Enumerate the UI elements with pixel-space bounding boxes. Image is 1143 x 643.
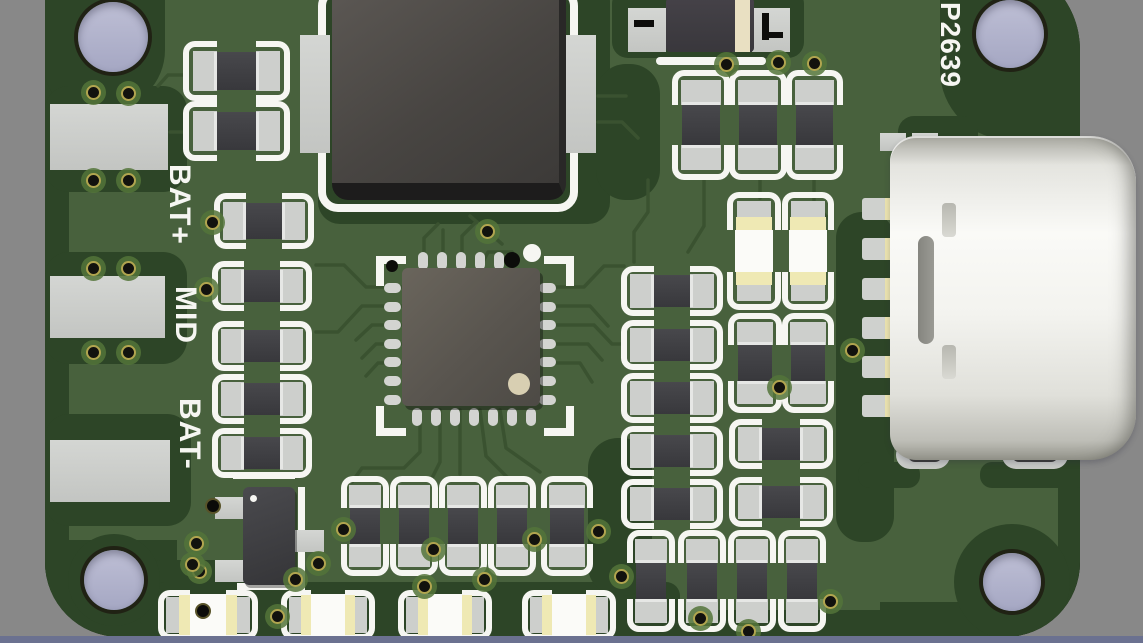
via xyxy=(311,556,326,571)
via xyxy=(823,594,838,609)
via-dot xyxy=(504,252,520,268)
silk-corner-bracket xyxy=(566,256,574,286)
led-pad xyxy=(354,597,367,633)
resistor xyxy=(212,261,312,311)
usb-shell-seam xyxy=(918,236,934,344)
qfn-pin xyxy=(384,283,401,293)
via xyxy=(121,86,136,101)
via xyxy=(614,569,629,584)
resistor-body xyxy=(682,102,719,148)
resistor xyxy=(541,476,593,576)
resistor xyxy=(728,530,776,632)
resistor-body xyxy=(738,342,773,384)
inductor-pad xyxy=(566,35,596,153)
led-anode-stripe xyxy=(585,595,596,635)
silk-corner-bracket xyxy=(566,406,574,436)
resistor-pad xyxy=(256,51,281,92)
resistor-pad xyxy=(280,436,303,470)
inductor-pad xyxy=(300,35,330,153)
resistor-pad xyxy=(681,145,720,170)
via xyxy=(591,524,606,539)
qfn-chip xyxy=(374,244,574,448)
led-pad xyxy=(791,201,824,218)
resistor-body xyxy=(759,486,803,518)
resistor xyxy=(183,101,290,161)
resistor xyxy=(621,426,723,476)
led-body xyxy=(311,594,345,636)
resistor-pad xyxy=(790,381,825,404)
via xyxy=(86,173,101,188)
qfn-pin xyxy=(539,283,556,293)
qfn-pin xyxy=(507,408,517,426)
resistor-body xyxy=(739,102,776,148)
via xyxy=(336,522,351,537)
resistor-pad xyxy=(349,544,382,567)
edge-connector-pad xyxy=(50,104,168,170)
cathode-band xyxy=(735,0,750,52)
sot23 xyxy=(195,470,325,600)
resistor-pad xyxy=(256,111,281,152)
resistor xyxy=(390,476,438,576)
via xyxy=(771,55,786,70)
led-pad xyxy=(737,284,772,301)
resistor-pad xyxy=(496,544,529,567)
via xyxy=(417,579,432,594)
diode-pad xyxy=(628,8,666,52)
resistor xyxy=(782,313,834,413)
led xyxy=(522,590,616,637)
qfn-pin xyxy=(384,302,401,312)
via xyxy=(693,611,708,626)
led-pad xyxy=(737,201,772,218)
resistor-pad xyxy=(736,599,769,622)
led-pad xyxy=(236,597,250,633)
led-pad xyxy=(406,597,419,633)
qfn-pin xyxy=(450,408,460,426)
qfn-pin xyxy=(539,395,556,405)
led-anode-stripe xyxy=(790,271,825,285)
inductor xyxy=(296,0,606,230)
resistor xyxy=(672,70,730,180)
resistor-body xyxy=(651,329,694,361)
sot-pad xyxy=(215,560,245,582)
resistor-pad xyxy=(447,544,480,567)
edge-connector-pad xyxy=(50,276,165,338)
resistor-body xyxy=(636,560,667,603)
resistor-pad xyxy=(280,269,303,303)
pin1-dot xyxy=(250,495,257,502)
via xyxy=(477,572,492,587)
via xyxy=(772,380,787,395)
resistor-body xyxy=(497,505,528,547)
resistor-body xyxy=(241,383,283,415)
diode-pad xyxy=(752,8,790,52)
resistor-body xyxy=(399,505,430,547)
resistor xyxy=(728,313,782,413)
resistor-pad xyxy=(738,145,777,170)
resistor-body xyxy=(241,437,283,469)
resistor xyxy=(729,70,787,180)
resistor-pad xyxy=(690,381,713,415)
led-body xyxy=(552,594,586,636)
qfn-pin xyxy=(412,408,422,426)
led-pad xyxy=(166,597,180,633)
resistor-pad xyxy=(690,434,713,468)
via xyxy=(845,343,860,358)
resistor-pad xyxy=(800,427,824,461)
led-anode-stripe xyxy=(344,595,355,635)
resistor-body xyxy=(787,560,818,603)
via xyxy=(185,557,200,572)
led-anode-stripe xyxy=(225,595,237,635)
resistor-body xyxy=(796,102,832,148)
resistor xyxy=(183,41,290,101)
via xyxy=(719,57,734,72)
led-pad xyxy=(289,597,302,633)
led-pad xyxy=(595,597,608,633)
via xyxy=(527,532,542,547)
resistor-body xyxy=(448,505,479,547)
qfn-pin xyxy=(539,302,556,312)
resistor xyxy=(439,476,487,576)
via xyxy=(121,345,136,360)
resistor xyxy=(778,530,826,632)
mounting-hole xyxy=(84,550,144,610)
led-pad xyxy=(791,284,824,301)
silk-corner-bracket xyxy=(376,256,384,286)
resistor xyxy=(212,321,312,371)
resistor xyxy=(488,476,536,576)
polarity-mark xyxy=(634,20,654,27)
led-body xyxy=(735,230,774,272)
via xyxy=(86,85,101,100)
via-dot xyxy=(386,260,398,272)
resistor-body xyxy=(651,488,694,520)
via xyxy=(195,603,211,619)
resistor-body xyxy=(759,428,803,460)
resistor-body xyxy=(737,560,768,603)
qfn-pin xyxy=(526,408,536,426)
usb-c-connector xyxy=(890,136,1136,460)
via xyxy=(807,56,822,71)
usb-shell-dimple xyxy=(942,345,956,379)
resistor-pad xyxy=(280,329,303,363)
resistor xyxy=(786,70,843,180)
resistor xyxy=(621,479,723,529)
qfn-pin xyxy=(488,408,498,426)
resistor-body xyxy=(791,342,824,384)
resistor-body xyxy=(350,505,381,547)
via xyxy=(121,173,136,188)
resistor-pad xyxy=(549,544,584,567)
qfn-pin xyxy=(384,395,401,405)
silk-line xyxy=(233,472,295,479)
silkscreen-label: BAT- xyxy=(174,398,204,470)
via xyxy=(189,536,204,551)
resistor xyxy=(212,374,312,424)
silk-line xyxy=(656,57,766,65)
led-pad xyxy=(471,597,484,633)
resistor-pad xyxy=(795,145,834,170)
resistor-body xyxy=(241,270,283,302)
resistor xyxy=(729,477,833,527)
via xyxy=(86,261,101,276)
resistor xyxy=(627,530,675,632)
qfn-pin xyxy=(539,339,556,349)
via xyxy=(205,498,221,514)
resistor-body xyxy=(651,275,694,307)
qfn-pin xyxy=(469,408,479,426)
usb-shell-dimple xyxy=(942,203,956,237)
edge-connector-pad xyxy=(50,440,170,502)
led-pad xyxy=(530,597,543,633)
led-body xyxy=(789,230,826,272)
led xyxy=(727,192,781,310)
resistor-pad xyxy=(280,382,303,416)
via xyxy=(86,345,101,360)
resistor xyxy=(621,373,723,423)
led xyxy=(782,192,834,310)
resistor-pad xyxy=(690,328,713,362)
bottom-bar xyxy=(0,636,1143,643)
polarity-mark xyxy=(765,32,783,38)
silkscreen-label: BAT+ xyxy=(164,164,194,245)
qfn-pin xyxy=(539,320,556,330)
silk-corner-bracket xyxy=(376,406,384,436)
mounting-hole xyxy=(78,2,148,72)
pin1-marker xyxy=(508,373,530,395)
resistor-pad xyxy=(635,599,668,622)
resistor xyxy=(621,320,723,370)
resistor-body xyxy=(241,330,283,362)
qfn-pin xyxy=(384,376,401,386)
qfn-pin xyxy=(539,376,556,386)
kicad-3d-viewport[interactable]: BAT+MIDBAT-P2639 xyxy=(0,0,1143,643)
silkscreen-label: P2639 xyxy=(936,2,964,88)
inductor-body xyxy=(332,0,566,200)
resistor-pad xyxy=(690,274,713,308)
resistor xyxy=(621,266,723,316)
resistor-body xyxy=(243,203,285,239)
via xyxy=(426,542,441,557)
via xyxy=(121,261,136,276)
silkscreen-label: MID xyxy=(170,286,200,344)
led-anode-stripe xyxy=(461,595,472,635)
mounting-hole xyxy=(983,553,1041,611)
via xyxy=(205,215,220,230)
resistor xyxy=(729,419,833,469)
via xyxy=(288,572,303,587)
via xyxy=(480,224,495,239)
via xyxy=(270,609,285,624)
resistor-pad xyxy=(737,381,774,404)
led-body xyxy=(428,594,462,636)
resistor-pad xyxy=(786,599,819,622)
sot-pad xyxy=(290,530,324,552)
sot-body xyxy=(243,487,295,585)
mounting-hole xyxy=(976,0,1044,68)
resistor-pad xyxy=(690,487,713,521)
resistor-body xyxy=(214,112,259,150)
led-anode-stripe xyxy=(736,271,773,285)
resistor-pad xyxy=(800,485,824,519)
resistor-body xyxy=(651,435,694,467)
qfn-pin xyxy=(384,320,401,330)
resistor-body xyxy=(687,560,718,603)
resistor-body xyxy=(550,505,583,547)
resistor-body xyxy=(651,382,694,414)
silk-dot xyxy=(523,244,541,262)
qfn-pin xyxy=(384,357,401,367)
resistor-body xyxy=(214,52,259,90)
qfn-pin xyxy=(539,357,556,367)
led xyxy=(398,590,492,637)
qfn-pin xyxy=(384,339,401,349)
qfn-pin xyxy=(431,408,441,426)
